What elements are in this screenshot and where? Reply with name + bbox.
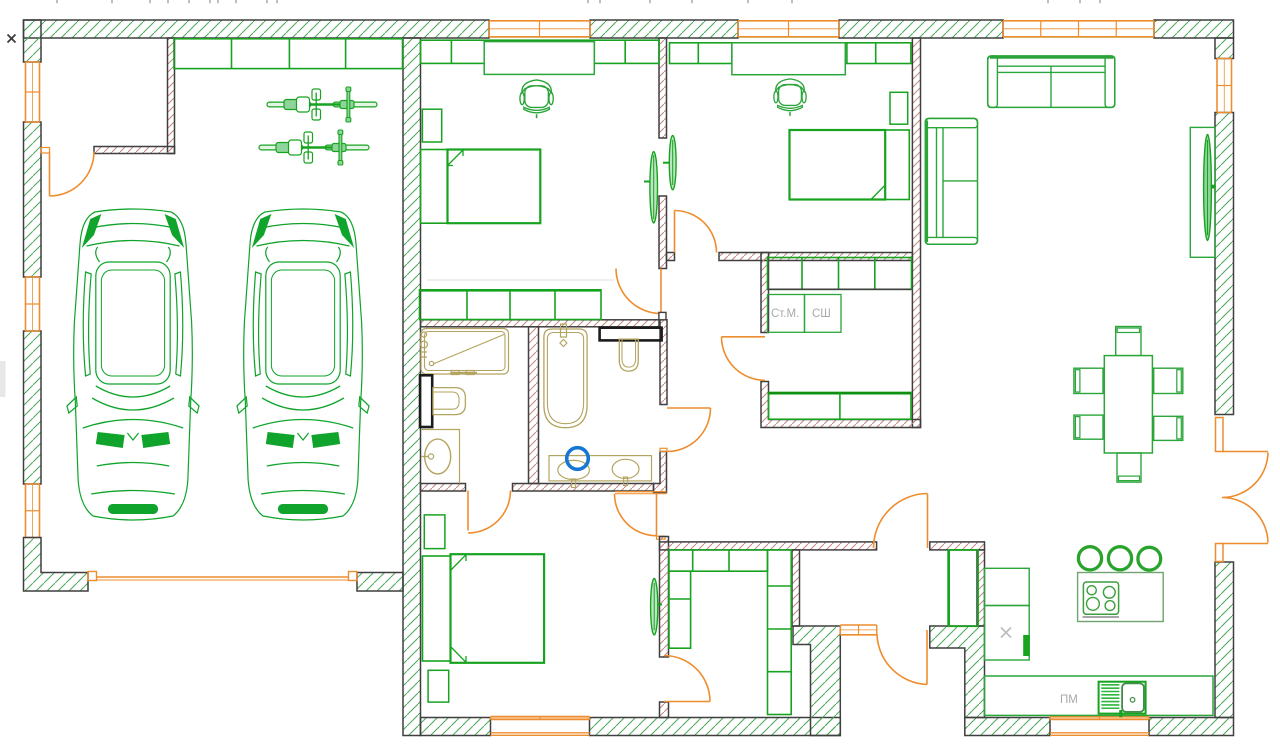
- svg-text:ПМ: ПМ: [1060, 694, 1078, 706]
- svg-text:СШ: СШ: [812, 308, 831, 320]
- svg-text:Ст.М.: Ст.М.: [771, 308, 799, 320]
